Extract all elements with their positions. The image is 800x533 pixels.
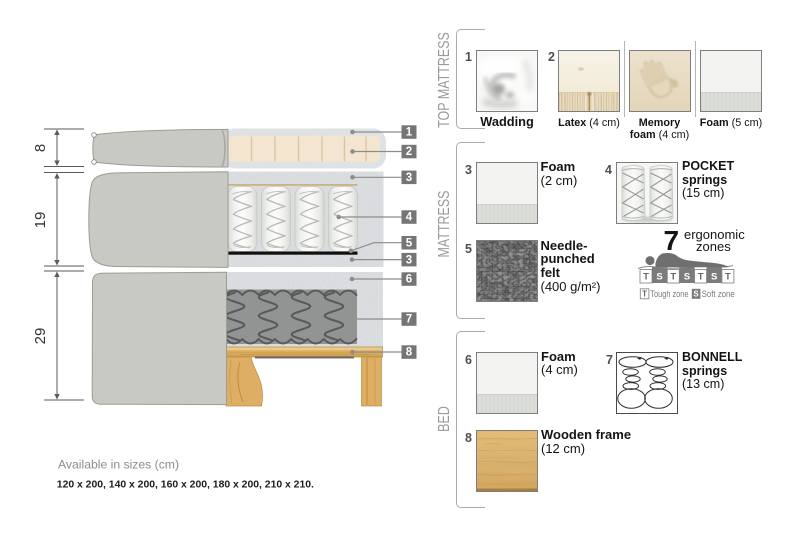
- svg-text:T: T: [698, 272, 704, 283]
- svg-text:T: T: [643, 272, 649, 283]
- svg-text:5: 5: [406, 237, 413, 249]
- svg-text:3: 3: [406, 172, 412, 184]
- svg-text:4: 4: [406, 212, 413, 224]
- svg-text:T: T: [642, 290, 647, 299]
- svg-text:19: 19: [32, 212, 49, 229]
- svg-text:T: T: [670, 272, 676, 283]
- svg-text:Available in sizes (cm): Available in sizes (cm): [58, 457, 179, 471]
- svg-text:Soft zone: Soft zone: [702, 289, 735, 300]
- svg-text:29: 29: [32, 328, 49, 345]
- svg-text:7: 7: [406, 314, 412, 326]
- svg-text:Tough zone: Tough zone: [650, 289, 688, 300]
- svg-text:S: S: [684, 272, 690, 283]
- svg-text:120 x 200, 140 x 200, 160 x 20: 120 x 200, 140 x 200, 160 x 200, 180 x 2…: [57, 480, 314, 491]
- svg-text:S: S: [693, 290, 699, 299]
- svg-text:3: 3: [406, 254, 412, 266]
- svg-text:2: 2: [406, 146, 412, 158]
- svg-text:S: S: [711, 272, 717, 283]
- svg-text:1: 1: [406, 127, 413, 139]
- svg-text:8: 8: [32, 144, 49, 152]
- svg-text:T: T: [725, 272, 731, 283]
- svg-text:8: 8: [406, 347, 413, 359]
- svg-text:6: 6: [406, 274, 412, 286]
- svg-text:S: S: [656, 272, 662, 283]
